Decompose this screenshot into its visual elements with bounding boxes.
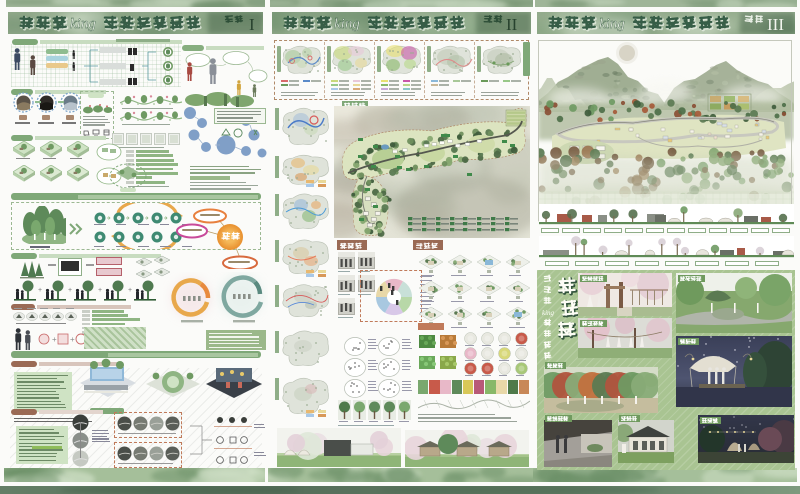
svg-text:king: king [599, 16, 625, 32]
svg-text:II: II [506, 15, 518, 34]
svg-text:III: III [767, 15, 784, 34]
svg-text:king: king [542, 309, 555, 317]
svg-text:king: king [334, 16, 360, 32]
svg-text:+: + [70, 335, 75, 344]
svg-text:+: + [52, 335, 57, 344]
svg-text:I: I [249, 15, 255, 34]
svg-text:king: king [70, 16, 96, 32]
